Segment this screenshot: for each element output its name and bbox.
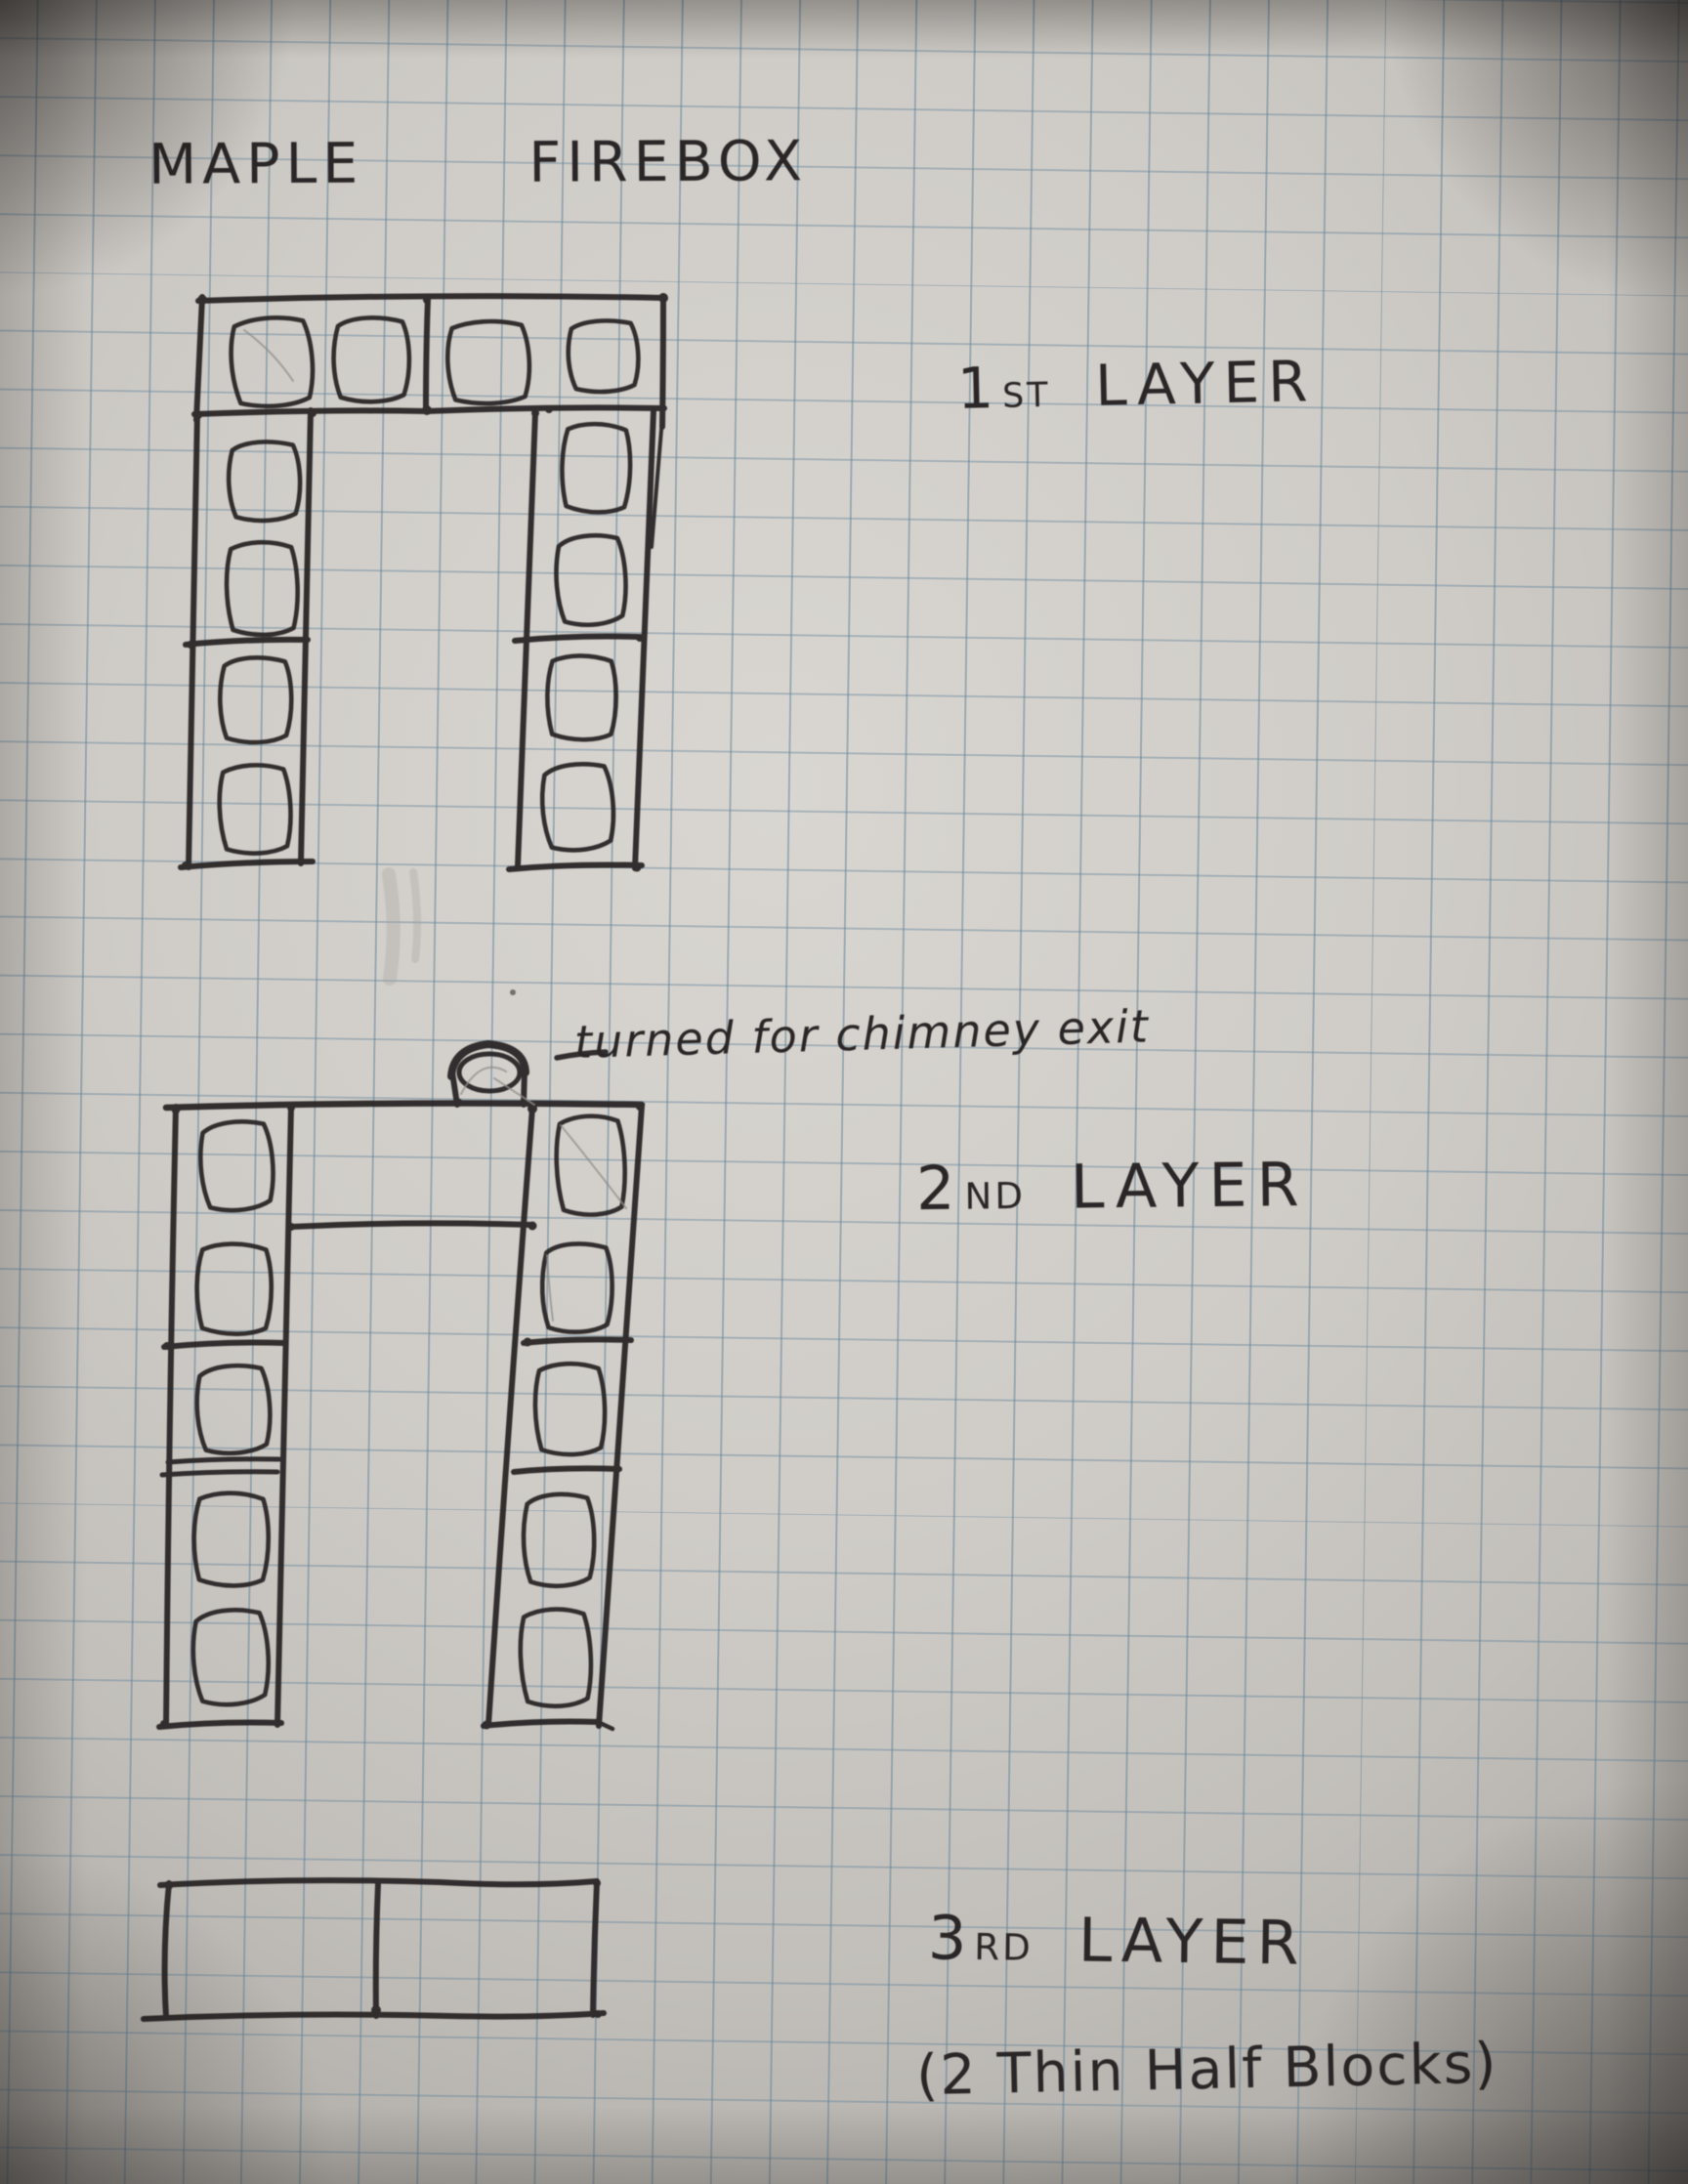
column-left-edge — [189, 412, 197, 867]
layer2-ordinal-suffix: ND — [964, 1174, 1026, 1218]
stray-dot — [510, 989, 516, 995]
block-hole — [541, 763, 614, 851]
column-left-edge — [488, 1108, 532, 1725]
layer1-word: LAYER — [1095, 348, 1318, 419]
block-hole — [534, 1364, 606, 1455]
top-edge — [166, 1104, 642, 1108]
block-hole — [547, 655, 617, 740]
block-hole — [446, 320, 530, 405]
column-right-edge — [277, 1106, 291, 1725]
column-bottom-edge — [509, 865, 642, 870]
column-bottom-edge — [484, 1722, 598, 1727]
block-hole — [519, 1608, 592, 1707]
layer2-block-holes — [192, 1114, 626, 1707]
layer3-diagram — [144, 1879, 604, 2019]
layer1-label: 1STLAYER — [956, 348, 1317, 422]
layer2-word: LAYER — [1071, 1149, 1309, 1223]
bar-divider — [426, 299, 428, 411]
column-bottom-edge — [159, 1723, 281, 1728]
pencil-diagonal-hole — [547, 1255, 553, 1321]
block-hole — [196, 1365, 271, 1454]
block-hole — [561, 423, 632, 514]
chimney-exit-block — [451, 1044, 526, 1105]
pencil-hole-mark — [244, 330, 293, 381]
sketch-drawing — [0, 0, 1688, 2184]
bar-top-edge — [198, 296, 663, 301]
block-hole — [193, 1492, 270, 1586]
column-left-edge — [166, 1107, 176, 1726]
column-joint — [515, 637, 638, 642]
column-joint — [524, 1339, 631, 1343]
column-joint — [168, 1459, 279, 1462]
block-hole — [228, 441, 300, 522]
block-hole — [229, 315, 316, 409]
chimney-block-hole — [459, 1054, 520, 1091]
block-hole — [540, 1242, 613, 1333]
layer2-pen-dots — [160, 1099, 644, 1730]
chimney-block-left-side — [452, 1072, 457, 1105]
block-hole — [196, 1243, 273, 1334]
sketch-ink-layer: MAPLE FIREBOX 1STLAYER turned for chimne… — [0, 0, 1688, 2184]
divider — [376, 1884, 378, 2016]
block-hole — [556, 535, 626, 626]
bar-bottom-edge — [291, 1223, 532, 1227]
layer3-pen-dots — [165, 1879, 603, 2018]
pencil-smudge — [389, 872, 417, 979]
bar-left-edge — [196, 297, 202, 420]
column-joint — [186, 640, 308, 645]
layer1-ordinal: 1 — [956, 355, 1002, 422]
right-edge — [593, 1882, 597, 2015]
layer3-ordinal: 3 — [928, 1902, 975, 1974]
block-hole — [332, 316, 410, 403]
block-hole — [569, 320, 639, 392]
column-joint-double — [162, 1472, 277, 1475]
layer2-ordinal: 2 — [916, 1153, 965, 1225]
block-hole — [218, 764, 292, 855]
block-hole — [226, 542, 298, 636]
column-joint — [164, 1343, 285, 1348]
block-hole — [192, 1610, 269, 1705]
block-hole — [523, 1493, 595, 1586]
pencil-diagonal-hole — [561, 1125, 626, 1208]
column-joint — [514, 1468, 619, 1472]
layer1-ordinal-suffix: ST — [1002, 376, 1051, 416]
layer2-diagram — [159, 1044, 644, 1730]
column-bottom-edge — [181, 861, 313, 867]
layer3-ordinal-suffix: RD — [974, 1925, 1034, 1969]
layer3-label: 3RDLAYER — [928, 1902, 1308, 1978]
left-edge — [165, 1883, 169, 2017]
layer1-left-column — [181, 410, 313, 867]
sketch-title: MAPLE FIREBOX — [148, 129, 808, 197]
layer2-label: 2NDLAYER — [916, 1149, 1309, 1224]
block-hole — [199, 1120, 274, 1211]
layer3-word: LAYER — [1077, 1904, 1307, 1978]
bar-right-edge — [662, 296, 663, 427]
block-hole — [219, 656, 293, 743]
layer1-diagram — [181, 293, 668, 872]
layer3-note: (2 Thin Half Blocks) — [915, 2032, 1498, 2108]
photo-of-sketch: MAPLE FIREBOX 1STLAYER turned for chimne… — [0, 0, 1688, 2184]
